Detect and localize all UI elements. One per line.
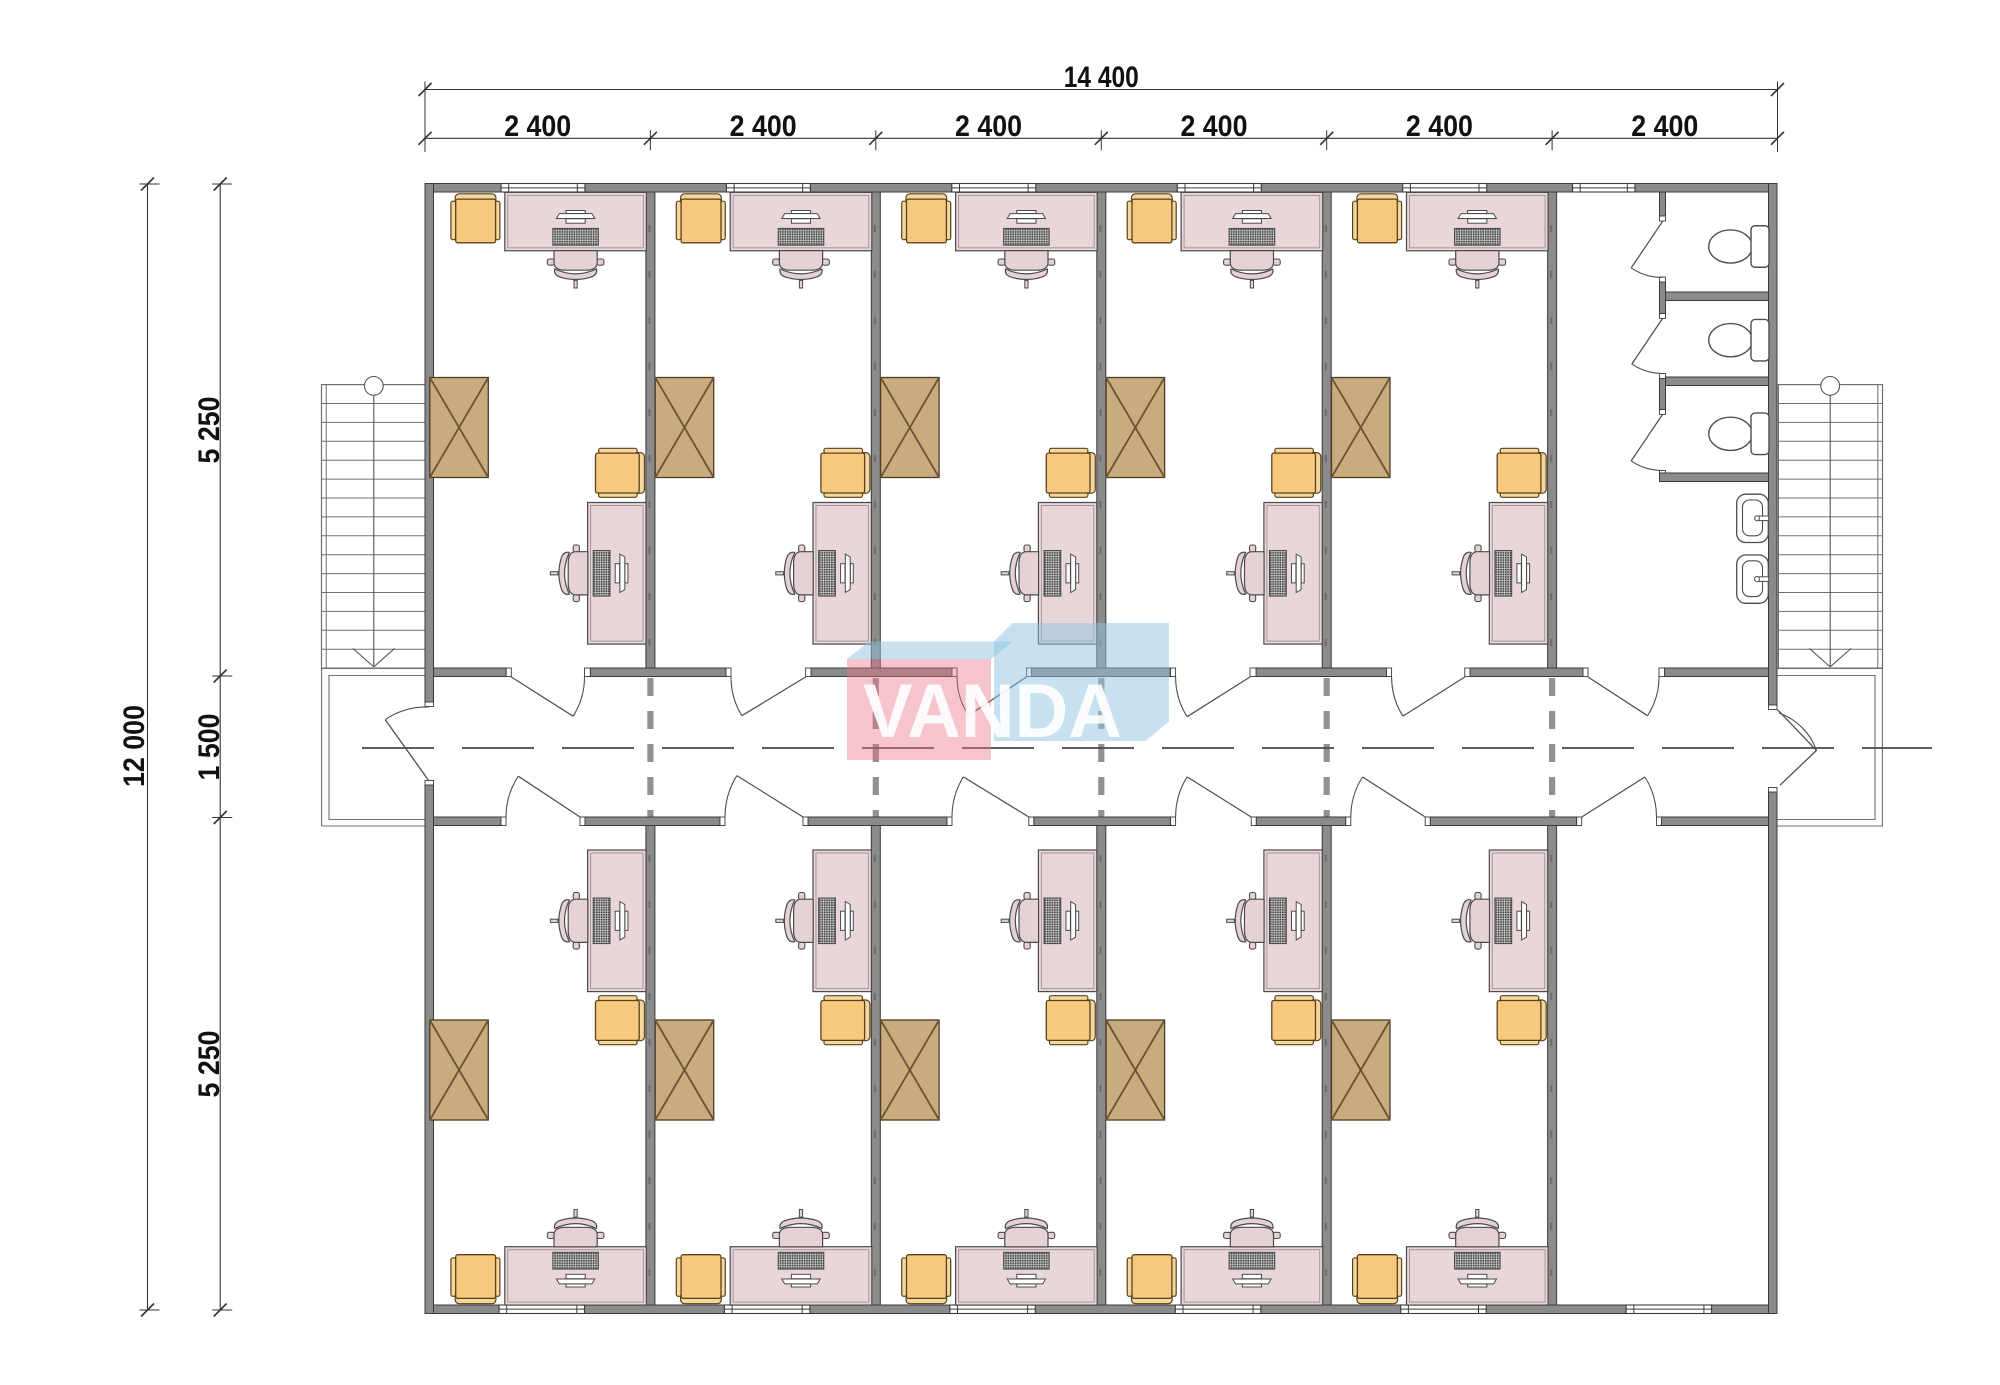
svg-text:14 400: 14 400 xyxy=(1064,61,1139,94)
svg-text:12 000: 12 000 xyxy=(118,705,151,787)
svg-text:VANDA: VANDA xyxy=(863,669,1122,754)
svg-text:2 400: 2 400 xyxy=(730,110,797,143)
svg-text:5 250: 5 250 xyxy=(193,1031,226,1098)
svg-text:1 500: 1 500 xyxy=(193,714,226,781)
svg-text:2 400: 2 400 xyxy=(955,110,1022,143)
svg-text:2 400: 2 400 xyxy=(1631,110,1698,143)
svg-text:2 400: 2 400 xyxy=(1180,110,1247,143)
svg-text:2 400: 2 400 xyxy=(504,110,571,143)
svg-text:5 250: 5 250 xyxy=(193,397,226,464)
svg-text:2 400: 2 400 xyxy=(1406,110,1473,143)
